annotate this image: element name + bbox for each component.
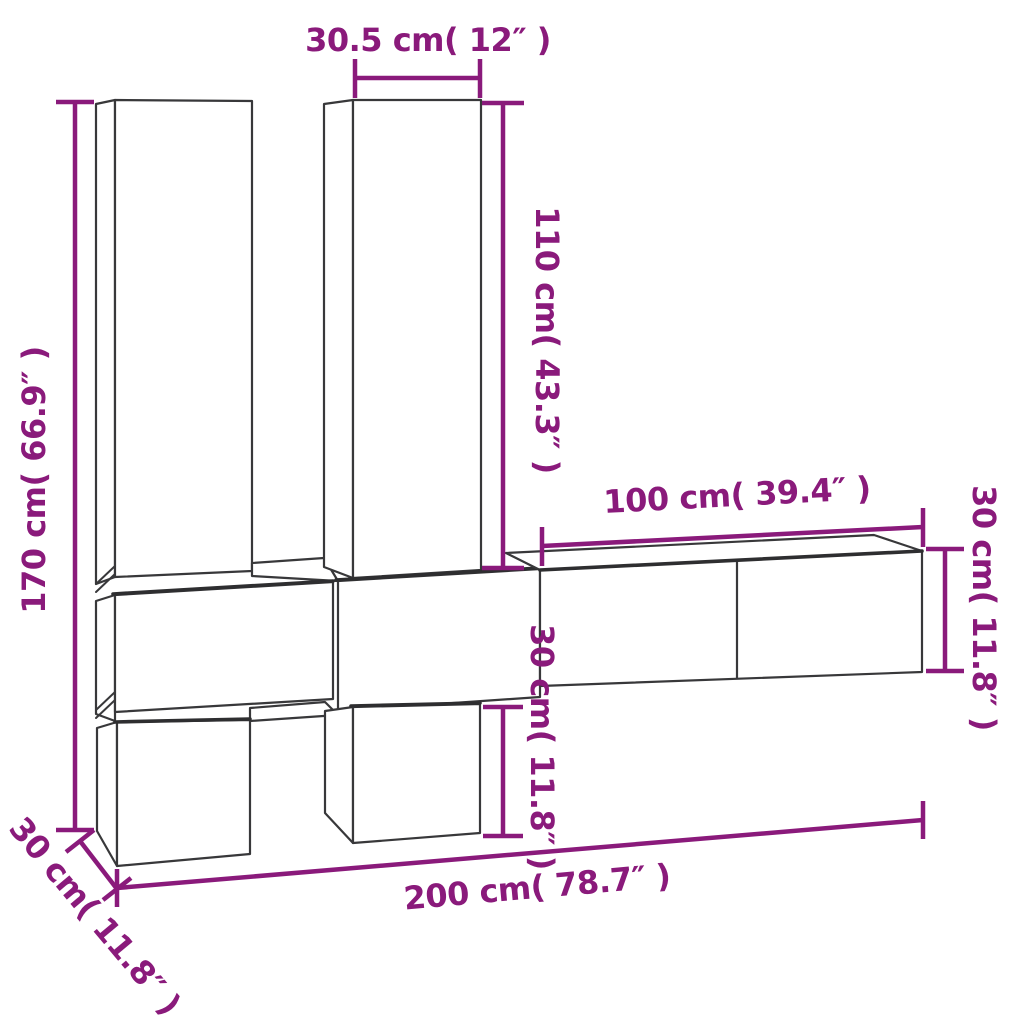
dim-top-width (355, 59, 480, 98)
label-lower-height: 30 cm( 11.8″ ) (523, 624, 561, 870)
tall-cabinet-left-front (115, 100, 252, 577)
bottom-cabinet-center (325, 703, 480, 843)
wall-shelf-front (540, 551, 922, 686)
bottom-cabinet-left-front (117, 720, 250, 866)
tall-cabinet-center (324, 100, 481, 578)
wall-shelf-cabinet (506, 535, 922, 686)
label-middle-height: 110 cm( 43.3″ ) (528, 206, 566, 474)
middle-cabinet-row (96, 568, 540, 721)
dim-middle-height (482, 103, 524, 568)
tall-cabinet-left (96, 100, 252, 584)
label-top-width: 30.5 cm( 12″ ) (305, 21, 551, 59)
tall-cabinet-center-side (324, 100, 353, 578)
middle-cabinet-left-front (115, 582, 333, 712)
dim-lower-height (483, 707, 523, 836)
label-left-height: 170 cm( 66.9″ ) (15, 346, 53, 614)
bottom-cabinet-left (97, 719, 250, 866)
bottom-cabinet-center-side (325, 707, 353, 843)
middle-cabinet-right-front (338, 569, 540, 711)
bottom-cabinet-center-front (353, 704, 480, 843)
dim-left-height (56, 102, 94, 830)
dimension-diagram: 30.5 cm( 12″ ) 170 cm( 66.9″ ) 110 cm( 4… (0, 0, 1024, 1024)
tall-cabinet-center-front (353, 100, 481, 578)
dim-shelf-height (926, 549, 964, 671)
bottom-cabinet-left-side (97, 722, 117, 866)
label-shelf-height: 30 cm( 11.8″ ) (965, 485, 1003, 731)
tall-cabinet-left-side (96, 100, 115, 584)
